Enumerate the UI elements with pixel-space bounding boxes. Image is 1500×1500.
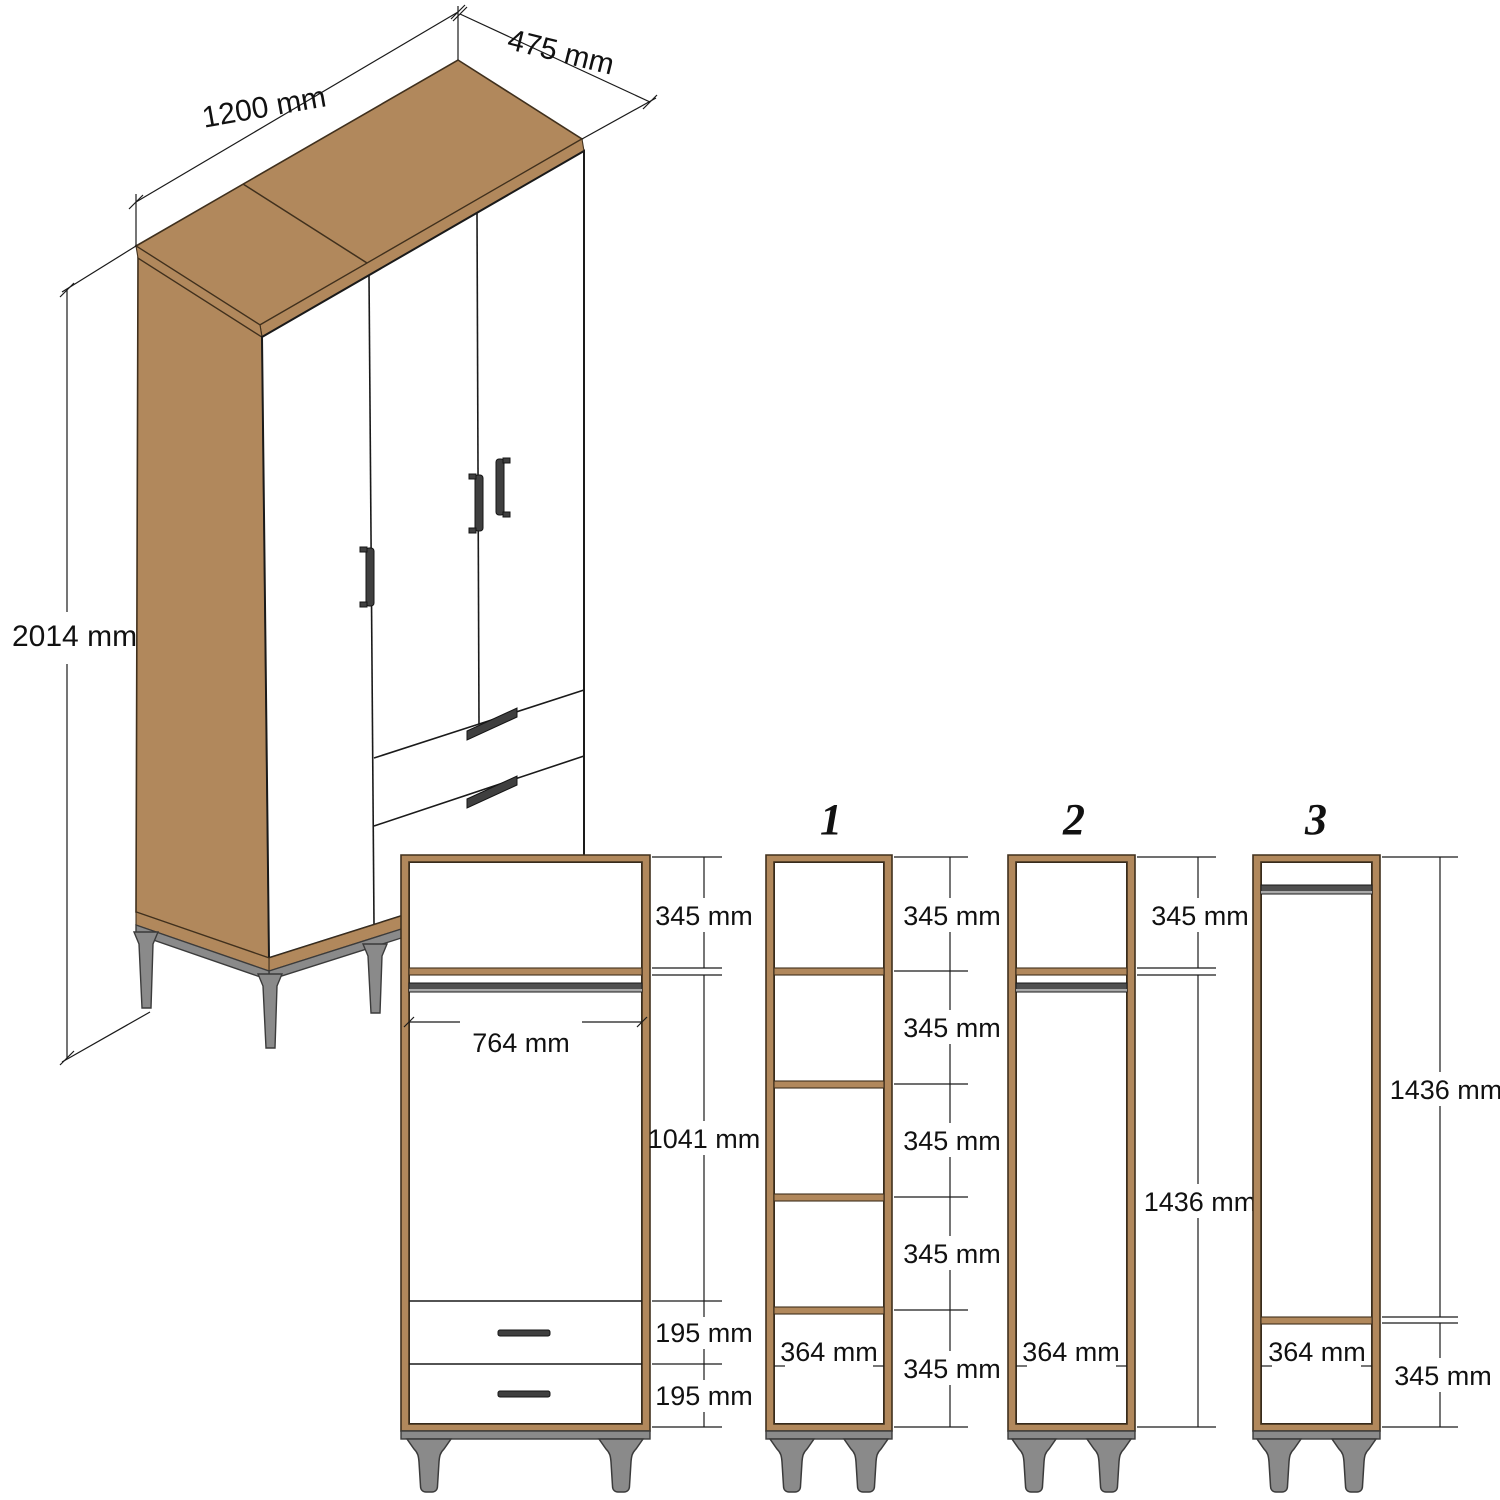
section-2-left-leg (1012, 1439, 1056, 1492)
front-dim-drawer-2: 195 mm (655, 1381, 753, 1411)
section-3-number: 3 (1304, 795, 1327, 844)
front-right-leg (599, 1439, 643, 1492)
section-2-shelf (1016, 968, 1127, 975)
iso-height-dimension: 2014 mm (12, 246, 150, 1065)
front-dim-top-shelf: 345 mm (655, 901, 753, 931)
section-3-left-leg (1257, 1439, 1301, 1492)
section-2-hanging-rail (1016, 983, 1127, 992)
front-interior (409, 862, 642, 1424)
iso-side-panel (136, 258, 269, 958)
section-1-dim-1: 345 mm (903, 901, 1001, 931)
section-2-dim-1: 345 mm (1151, 901, 1249, 931)
iso-leg-middle (363, 944, 387, 1013)
section-3-hanging-rail (1261, 885, 1372, 894)
depth-dimension-label: 475 mm (504, 23, 617, 81)
section-3-right-leg (1332, 1439, 1376, 1492)
section-1-left-leg (770, 1439, 814, 1492)
section-2-number: 2 (1062, 795, 1085, 844)
section-1-width-label: 364 mm (780, 1337, 878, 1367)
iso-leg-back-left (134, 932, 158, 1008)
section-1-dim-5: 345 mm (903, 1354, 1001, 1384)
middle-door-handle-foot-top (469, 474, 476, 479)
section-1-width-dimension: 364 mm (774, 1337, 884, 1367)
front-drawer-1-handle (498, 1330, 550, 1336)
section-1-dim-3: 345 mm (903, 1126, 1001, 1156)
front-dim-drawer-1: 195 mm (655, 1318, 753, 1348)
left-door-handle-foot-top (360, 547, 367, 552)
front-left-leg (407, 1439, 451, 1492)
front-dim-hanging: 1041 mm (648, 1124, 761, 1154)
right-door-handle-foot-bottom (503, 512, 510, 517)
section-1-metal-base (766, 1431, 892, 1439)
right-door-handle-foot-top (503, 458, 510, 463)
section-1-dim-4: 345 mm (903, 1239, 1001, 1269)
section-1-shelf-2 (774, 1081, 884, 1088)
front-view: 764 mm 345 mm 1041 mm 19 (401, 855, 760, 1492)
section-1-dim-2: 345 mm (903, 1013, 1001, 1043)
section-2-right-leg (1087, 1439, 1131, 1492)
wardrobe-technical-drawing: 2014 mm 1200 mm 475 mm (0, 0, 1500, 1500)
section-1-number: 1 (820, 795, 842, 844)
section-1-right-leg (844, 1439, 888, 1492)
iso-leg-front-left (258, 974, 282, 1048)
height-dimension-label: 2014 mm (12, 620, 137, 653)
section-1-shelf-3 (774, 1194, 884, 1201)
left-door-handle-foot-bottom (360, 602, 367, 607)
front-metal-base (401, 1431, 650, 1439)
section-2: 2 364 mm 345 mm 1436 mm (1008, 795, 1256, 1492)
section-3-dimensions: 1436 mm 345 mm (1382, 857, 1500, 1427)
front-top-shelf (409, 968, 642, 975)
section-2-metal-base (1008, 1431, 1135, 1439)
left-door-handle (366, 548, 374, 606)
section-2-dim-2: 1436 mm (1144, 1187, 1257, 1217)
section-3-dim-1: 1436 mm (1390, 1075, 1500, 1105)
section-3-dim-2: 345 mm (1394, 1361, 1492, 1391)
right-door-handle (496, 459, 504, 515)
section-2-dimensions: 345 mm 1436 mm (1137, 857, 1256, 1427)
drawing-svg: 2014 mm 1200 mm 475 mm (0, 0, 1500, 1500)
section-1-dimensions: 345 mm 345 mm 345 mm 345 mm 345 mm (894, 857, 1001, 1427)
middle-door-handle-foot-bottom (469, 528, 476, 533)
hanging-width-label: 764 mm (472, 1028, 570, 1058)
section-2-width-label: 364 mm (1022, 1337, 1120, 1367)
section-2-width-dimension: 364 mm (1016, 1337, 1127, 1367)
section-3: 3 364 mm 1436 mm 345 mm (1253, 795, 1500, 1492)
section-1-shelf-1 (774, 968, 884, 975)
section-3-metal-base (1253, 1431, 1380, 1439)
section-3-shelf (1261, 1317, 1372, 1324)
section-3-width-label: 364 mm (1268, 1337, 1366, 1367)
front-drawer-2-handle (498, 1391, 550, 1397)
section-3-width-dimension: 364 mm (1261, 1337, 1372, 1367)
front-dimensions: 345 mm 1041 mm 195 mm 195 mm (648, 857, 761, 1427)
section-1-shelf-4 (774, 1307, 884, 1314)
middle-door-handle (475, 475, 483, 531)
section-1: 1 364 mm 345 mm (766, 795, 1001, 1492)
front-hanging-rail (409, 983, 642, 992)
